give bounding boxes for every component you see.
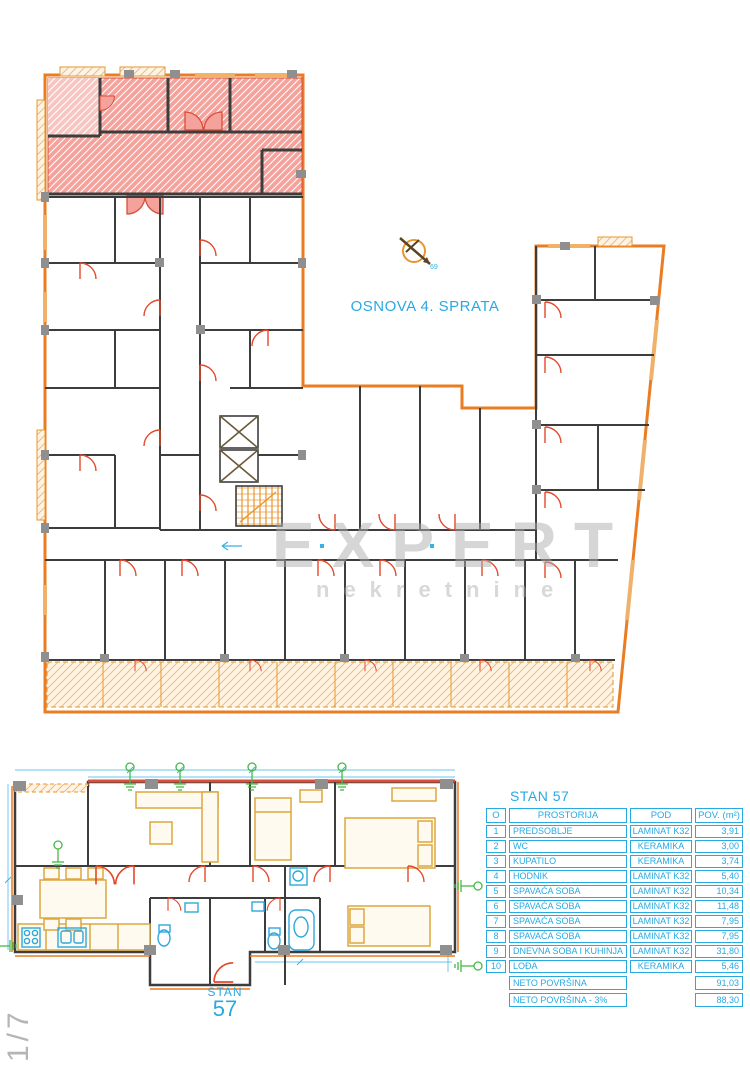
row-num: 3 — [486, 855, 506, 868]
row-room: WC — [509, 840, 627, 853]
row-room: HODNIK — [509, 870, 627, 883]
north-arrow-icon: 69 — [400, 238, 438, 271]
row-num: 6 — [486, 900, 506, 913]
row-area: 5,46 — [695, 960, 743, 973]
floor-title: OSNOVA 4. SPRATA — [300, 298, 550, 315]
summary-label: NETO POVRŠINA — [509, 976, 627, 990]
row-floor: KERAMIKA — [630, 855, 692, 868]
row-floor: LAMINAT K32 — [630, 915, 692, 928]
row-room: SPAVAĆA SOBA — [509, 900, 627, 913]
table-title: STAN 57 — [510, 788, 748, 804]
row-num: 10 — [486, 960, 506, 973]
watermark-brand: EXPERT — [272, 508, 630, 582]
row-area: 7,95 — [695, 915, 743, 928]
header-floor: POD — [630, 808, 692, 823]
table-row: 8 SPAVAĆA SOBA LAMINAT K32 7,95 — [486, 930, 748, 943]
row-num: 1 — [486, 825, 506, 838]
row-floor: KERAMIKA — [630, 840, 692, 853]
table-row: 5 SPAVAĆA SOBA LAMINAT K32 10,34 — [486, 885, 748, 898]
row-floor: KERAMIKA — [630, 960, 692, 973]
row-area: 31,80 — [695, 945, 743, 958]
table-row: 7 SPAVAĆA SOBA LAMINAT K32 7,95 — [486, 915, 748, 928]
table-row: 9 DNEVNA SOBA I KUHINJA LAMINAT K32 31,8… — [486, 945, 748, 958]
header-num: O — [486, 808, 506, 823]
row-room: SPAVAĆA SOBA — [509, 885, 627, 898]
highlighted-unit — [48, 78, 302, 214]
unit-label-number: 57 — [165, 999, 285, 1019]
header-area: POV. (m²) — [695, 808, 743, 823]
row-area: 7,95 — [695, 930, 743, 943]
table-row: 1 PREDSOBLJE LAMINAT K32 3,91 — [486, 825, 748, 838]
row-floor: LAMINAT K32 — [630, 885, 692, 898]
row-room: LOĐA — [509, 960, 627, 973]
row-room: SPAVAĆA SOBA — [509, 930, 627, 943]
summary-label: NETO POVRŠINA - 3% — [509, 993, 627, 1007]
table-row: 3 KUPATILO KERAMIKA 3,74 — [486, 855, 748, 868]
compass-label: 69 — [430, 264, 438, 271]
row-num: 9 — [486, 945, 506, 958]
summary-row-neto: NETO POVRŠINA 91,03 — [486, 976, 748, 990]
table-row: 2 WC KERAMIKA 3,00 — [486, 840, 748, 853]
header-room: PROSTORIJA — [509, 808, 627, 823]
row-room: DNEVNA SOBA I KUHINJA — [509, 945, 627, 958]
row-area: 3,91 — [695, 825, 743, 838]
summary-value: 91,03 — [695, 976, 743, 990]
sheet-reference: 1/7 — [2, 1008, 36, 1062]
table-row: 6 SPAVAĆA SOBA LAMINAT K32 11,48 — [486, 900, 748, 913]
row-num: 4 — [486, 870, 506, 883]
row-floor: LAMINAT K32 — [630, 825, 692, 838]
row-area: 3,74 — [695, 855, 743, 868]
row-floor: LAMINAT K32 — [630, 900, 692, 913]
row-num: 5 — [486, 885, 506, 898]
table-row: 4 HODNIK LAMINAT K32 5,40 — [486, 870, 748, 883]
row-area: 10,34 — [695, 885, 743, 898]
row-area: 5,40 — [695, 870, 743, 883]
row-num: 7 — [486, 915, 506, 928]
summary-value: 88,30 — [695, 993, 743, 1007]
row-num: 8 — [486, 930, 506, 943]
row-area: 11,48 — [695, 900, 743, 913]
table-row: 10 LOĐA KERAMIKA 5,46 — [486, 960, 748, 973]
summary-row-neto-minus: NETO POVRŠINA - 3% 88,30 — [486, 993, 748, 1007]
row-num: 2 — [486, 840, 506, 853]
row-room: KUPATILO — [509, 855, 627, 868]
row-floor: LAMINAT K32 — [630, 870, 692, 883]
floor-plan-sheet: 69 — [0, 0, 750, 1080]
row-floor: LAMINAT K32 — [630, 945, 692, 958]
row-room: SPAVAĆA SOBA — [509, 915, 627, 928]
table-header-row: O PROSTORIJA POD POV. (m²) — [486, 808, 748, 823]
row-area: 3,00 — [695, 840, 743, 853]
unit-label: STAN 57 — [165, 985, 285, 1019]
unit-57-floor-plan — [0, 763, 482, 989]
main-floor-plan — [37, 67, 664, 712]
watermark-subtitle: nekretnine — [316, 577, 567, 603]
row-floor: LAMINAT K32 — [630, 930, 692, 943]
room-area-table: STAN 57 O PROSTORIJA POD POV. (m²) 1 PRE… — [486, 788, 748, 1009]
row-room: PREDSOBLJE — [509, 825, 627, 838]
